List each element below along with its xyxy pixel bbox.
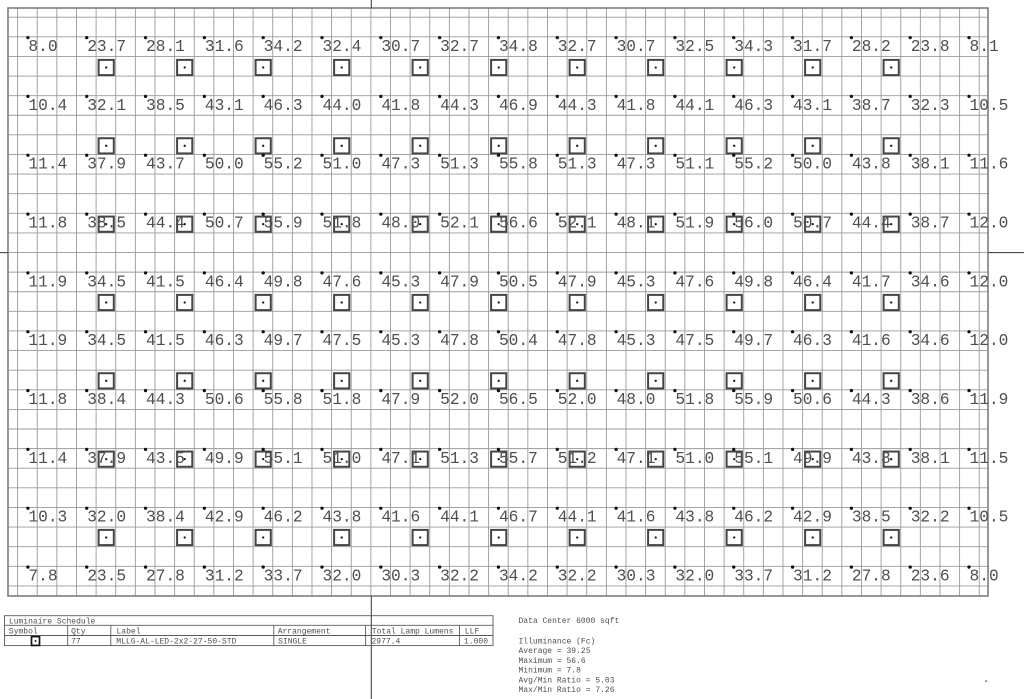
- svg-text:Luminaire Schedule: Luminaire Schedule: [9, 618, 96, 627]
- svg-text:55.8: 55.8: [499, 156, 538, 174]
- svg-text:11.4: 11.4: [28, 450, 67, 468]
- svg-text:38.4: 38.4: [87, 391, 126, 409]
- svg-text:31.6: 31.6: [205, 38, 244, 56]
- svg-text:51.0: 51.0: [323, 450, 362, 468]
- svg-text:55.1: 55.1: [264, 450, 303, 468]
- svg-text:51.0: 51.0: [323, 156, 362, 174]
- svg-text:37.9: 37.9: [87, 156, 126, 174]
- svg-text:44.1: 44.1: [675, 97, 714, 115]
- svg-text:Symbol: Symbol: [9, 628, 38, 637]
- svg-text:LLF: LLF: [465, 628, 480, 637]
- svg-text:30.7: 30.7: [617, 38, 656, 56]
- svg-text:51.9: 51.9: [675, 214, 714, 232]
- svg-text:56.0: 56.0: [734, 214, 773, 232]
- svg-text:8.1: 8.1: [970, 38, 999, 56]
- svg-text:38.5: 38.5: [87, 214, 126, 232]
- svg-text:47.1: 47.1: [381, 450, 420, 468]
- svg-text:46.4: 46.4: [793, 273, 832, 291]
- svg-text:49.7: 49.7: [734, 332, 773, 350]
- svg-text:44.4: 44.4: [146, 214, 185, 232]
- svg-text:45.3: 45.3: [617, 273, 656, 291]
- svg-text:42.9: 42.9: [793, 509, 832, 527]
- svg-text:44.3: 44.3: [146, 391, 185, 409]
- svg-text:38.1: 38.1: [911, 450, 950, 468]
- svg-text:47.8: 47.8: [558, 332, 597, 350]
- svg-text:34.5: 34.5: [87, 332, 126, 350]
- svg-text:32.5: 32.5: [675, 38, 714, 56]
- svg-text:27.8: 27.8: [852, 567, 891, 585]
- svg-text:12.0: 12.0: [970, 332, 1009, 350]
- svg-text:Average = 39.25: Average = 39.25: [519, 647, 591, 656]
- svg-text:49.8: 49.8: [264, 273, 303, 291]
- svg-text:34.3: 34.3: [734, 38, 773, 56]
- svg-text:55.1: 55.1: [734, 450, 773, 468]
- svg-text:32.2: 32.2: [440, 567, 479, 585]
- svg-text:32.7: 32.7: [558, 38, 597, 56]
- svg-text:8.0: 8.0: [28, 38, 57, 56]
- svg-text:41.8: 41.8: [617, 97, 656, 115]
- svg-text:50.6: 50.6: [205, 391, 244, 409]
- svg-text:44.4: 44.4: [852, 214, 891, 232]
- svg-text:50.5: 50.5: [499, 273, 538, 291]
- svg-text:Data Center 6000 sqft: Data Center 6000 sqft: [519, 617, 620, 626]
- svg-text:47.5: 47.5: [675, 332, 714, 350]
- svg-text:Arrangement: Arrangement: [278, 628, 331, 637]
- svg-text:10.5: 10.5: [970, 97, 1009, 115]
- svg-text:Qty: Qty: [71, 628, 86, 637]
- svg-text:46.2: 46.2: [734, 509, 773, 527]
- svg-text:48.0: 48.0: [617, 391, 656, 409]
- svg-text:32.3: 32.3: [911, 97, 950, 115]
- svg-text:50.0: 50.0: [205, 156, 244, 174]
- svg-text:28.1: 28.1: [146, 38, 185, 56]
- svg-text:45.3: 45.3: [381, 332, 420, 350]
- svg-text:31.2: 31.2: [205, 567, 244, 585]
- svg-text:51.3: 51.3: [440, 156, 479, 174]
- svg-text:47.9: 47.9: [440, 273, 479, 291]
- svg-text:55.9: 55.9: [734, 391, 773, 409]
- svg-text:11.4: 11.4: [28, 156, 67, 174]
- svg-text:50.6: 50.6: [793, 391, 832, 409]
- svg-text:34.6: 34.6: [911, 273, 950, 291]
- svg-text:49.7: 49.7: [264, 332, 303, 350]
- svg-text:47.3: 47.3: [381, 156, 420, 174]
- svg-text:Total Lamp Lumens: Total Lamp Lumens: [372, 628, 454, 637]
- svg-text:38.4: 38.4: [146, 509, 185, 527]
- svg-text:32.2: 32.2: [558, 567, 597, 585]
- svg-text:50.4: 50.4: [499, 332, 538, 350]
- svg-text:46.2: 46.2: [264, 509, 303, 527]
- svg-text:51.0: 51.0: [675, 450, 714, 468]
- svg-text:55.2: 55.2: [264, 156, 303, 174]
- svg-text:46.3: 46.3: [734, 97, 773, 115]
- svg-text:1.000: 1.000: [464, 638, 488, 647]
- svg-text:34.2: 34.2: [499, 567, 538, 585]
- svg-text:50.0: 50.0: [793, 156, 832, 174]
- svg-text:Label: Label: [117, 628, 141, 637]
- svg-text:7.8: 7.8: [28, 567, 57, 585]
- svg-text:33.7: 33.7: [734, 567, 773, 585]
- svg-text:52.1: 52.1: [558, 214, 597, 232]
- svg-text:Maximum = 56.6: Maximum = 56.6: [519, 657, 586, 666]
- svg-text:51.8: 51.8: [323, 214, 362, 232]
- svg-text:51.8: 51.8: [323, 391, 362, 409]
- svg-text:34.8: 34.8: [499, 38, 538, 56]
- svg-text:52.0: 52.0: [440, 391, 479, 409]
- svg-text:41.7: 41.7: [852, 273, 891, 291]
- svg-text:51.8: 51.8: [675, 391, 714, 409]
- svg-text:42.9: 42.9: [205, 509, 244, 527]
- svg-text:43.8: 43.8: [323, 509, 362, 527]
- svg-text:44.0: 44.0: [323, 97, 362, 115]
- svg-text:55.2: 55.2: [734, 156, 773, 174]
- svg-text:10.3: 10.3: [28, 509, 67, 527]
- svg-text:47.8: 47.8: [440, 332, 479, 350]
- svg-text:33.7: 33.7: [264, 567, 303, 585]
- svg-text:41.6: 41.6: [852, 332, 891, 350]
- svg-text:55.7: 55.7: [499, 450, 538, 468]
- svg-text:47.6: 47.6: [323, 273, 362, 291]
- svg-text:55.8: 55.8: [264, 391, 303, 409]
- svg-text:28.2: 28.2: [852, 38, 891, 56]
- svg-text:46.3: 46.3: [793, 332, 832, 350]
- svg-text:43.1: 43.1: [793, 97, 832, 115]
- svg-text:37.9: 37.9: [87, 450, 126, 468]
- svg-text:38.7: 38.7: [852, 97, 891, 115]
- svg-text:49.8: 49.8: [734, 273, 773, 291]
- svg-text:31.2: 31.2: [793, 567, 832, 585]
- svg-text:51.2: 51.2: [558, 450, 597, 468]
- svg-text:43.1: 43.1: [205, 97, 244, 115]
- svg-text:44.3: 44.3: [852, 391, 891, 409]
- svg-text:34.2: 34.2: [264, 38, 303, 56]
- svg-text:8.0: 8.0: [970, 567, 999, 585]
- svg-text:77: 77: [71, 638, 81, 647]
- svg-text:41.6: 41.6: [381, 509, 420, 527]
- svg-text:47.9: 47.9: [558, 273, 597, 291]
- svg-text:38.5: 38.5: [146, 97, 185, 115]
- svg-text:11.9: 11.9: [28, 332, 67, 350]
- svg-text:11.8: 11.8: [28, 391, 67, 409]
- svg-text:44.3: 44.3: [558, 97, 597, 115]
- svg-text:41.5: 41.5: [146, 332, 185, 350]
- svg-text:38.6: 38.6: [911, 391, 950, 409]
- svg-text:31.7: 31.7: [793, 38, 832, 56]
- svg-text:45.3: 45.3: [617, 332, 656, 350]
- svg-text:11.9: 11.9: [28, 273, 67, 291]
- svg-text:43.8: 43.8: [852, 156, 891, 174]
- svg-text:56.5: 56.5: [499, 391, 538, 409]
- svg-text:45.3: 45.3: [381, 273, 420, 291]
- svg-text:51.3: 51.3: [440, 450, 479, 468]
- svg-text:50.7: 50.7: [793, 214, 832, 232]
- svg-text:46.9: 46.9: [499, 97, 538, 115]
- svg-text:11.5: 11.5: [970, 450, 1009, 468]
- svg-text:32.7: 32.7: [440, 38, 479, 56]
- svg-text:51.3: 51.3: [558, 156, 597, 174]
- svg-text:56.6: 56.6: [499, 214, 538, 232]
- svg-text:11.9: 11.9: [970, 391, 1009, 409]
- svg-text:47.6: 47.6: [675, 273, 714, 291]
- svg-text:48.0: 48.0: [381, 214, 420, 232]
- svg-text:32.0: 32.0: [87, 509, 126, 527]
- svg-text:47.5: 47.5: [323, 332, 362, 350]
- svg-text:52.1: 52.1: [440, 214, 479, 232]
- svg-text:23.8: 23.8: [911, 38, 950, 56]
- svg-text:41.8: 41.8: [381, 97, 420, 115]
- svg-text:Avg/Min Ratio = 5.03: Avg/Min Ratio = 5.03: [519, 676, 615, 685]
- svg-text:38.5: 38.5: [852, 509, 891, 527]
- svg-text:41.5: 41.5: [146, 273, 185, 291]
- svg-text:27.8: 27.8: [146, 567, 185, 585]
- svg-text:SINGLE: SINGLE: [278, 638, 307, 647]
- svg-text:47.9: 47.9: [381, 391, 420, 409]
- svg-text:46.3: 46.3: [205, 332, 244, 350]
- svg-text:23.6: 23.6: [911, 567, 950, 585]
- svg-text:12.0: 12.0: [970, 273, 1009, 291]
- svg-text:46.3: 46.3: [264, 97, 303, 115]
- svg-text:34.6: 34.6: [911, 332, 950, 350]
- svg-text:23.5: 23.5: [87, 567, 126, 585]
- svg-text:47.1: 47.1: [617, 450, 656, 468]
- svg-text:46.7: 46.7: [499, 509, 538, 527]
- svg-text:32.0: 32.0: [675, 567, 714, 585]
- svg-text:10.5: 10.5: [970, 509, 1009, 527]
- svg-text:49.9: 49.9: [205, 450, 244, 468]
- svg-text:43.7: 43.7: [146, 156, 185, 174]
- svg-text:52.0: 52.0: [558, 391, 597, 409]
- svg-text:12.0: 12.0: [970, 214, 1009, 232]
- svg-text:43.8: 43.8: [675, 509, 714, 527]
- svg-text:43.5: 43.5: [146, 450, 185, 468]
- svg-text:23.7: 23.7: [87, 38, 126, 56]
- svg-text:30.3: 30.3: [617, 567, 656, 585]
- svg-text:34.5: 34.5: [87, 273, 126, 291]
- svg-text:44.1: 44.1: [440, 509, 479, 527]
- svg-text:41.6: 41.6: [617, 509, 656, 527]
- svg-text:43.8: 43.8: [852, 450, 891, 468]
- svg-text:44.3: 44.3: [440, 97, 479, 115]
- svg-text:Minimum = 7.8: Minimum = 7.8: [519, 667, 582, 676]
- svg-text:38.7: 38.7: [911, 214, 950, 232]
- svg-text:30.3: 30.3: [381, 567, 420, 585]
- svg-text:55.9: 55.9: [264, 214, 303, 232]
- svg-text:32.4: 32.4: [323, 38, 362, 56]
- svg-text:Illuminance (Fc): Illuminance (Fc): [519, 638, 596, 647]
- svg-text:Max/Min Ratio = 7.26: Max/Min Ratio = 7.26: [519, 686, 615, 695]
- svg-text:51.1: 51.1: [675, 156, 714, 174]
- svg-text:50.7: 50.7: [205, 214, 244, 232]
- svg-text:32.2: 32.2: [911, 509, 950, 527]
- svg-text:44.1: 44.1: [558, 509, 597, 527]
- svg-text:38.1: 38.1: [911, 156, 950, 174]
- svg-text:48.1: 48.1: [617, 214, 656, 232]
- svg-text:30.7: 30.7: [381, 38, 420, 56]
- svg-text:47.3: 47.3: [617, 156, 656, 174]
- svg-text:49.9: 49.9: [793, 450, 832, 468]
- svg-text:2977.4: 2977.4: [372, 638, 401, 647]
- svg-text:11.8: 11.8: [28, 214, 67, 232]
- svg-text:10.4: 10.4: [28, 97, 67, 115]
- svg-text:MLLG-AL-LED-2x2-27-50-STD: MLLG-AL-LED-2x2-27-50-STD: [116, 638, 236, 647]
- svg-text:46.4: 46.4: [205, 273, 244, 291]
- svg-text:32.1: 32.1: [87, 97, 126, 115]
- svg-text:32.0: 32.0: [323, 567, 362, 585]
- svg-text:11.6: 11.6: [970, 156, 1009, 174]
